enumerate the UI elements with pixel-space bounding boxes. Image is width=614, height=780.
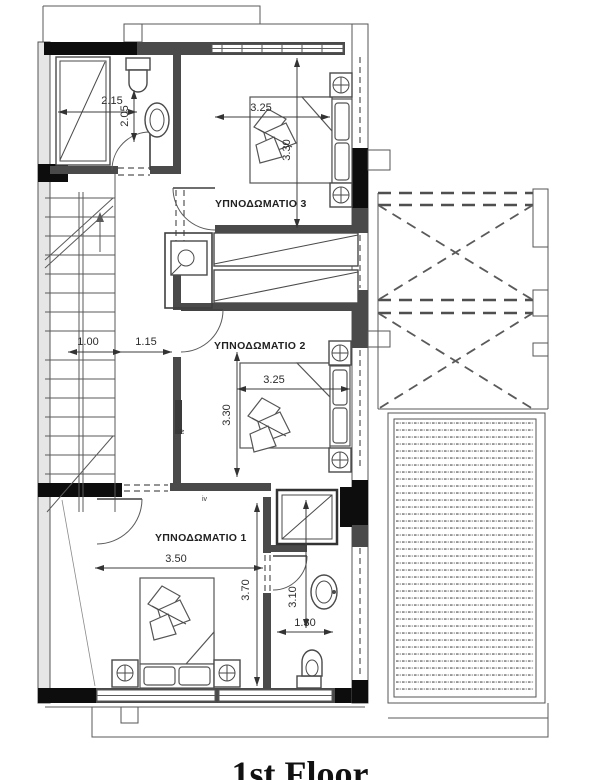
column-right-mid xyxy=(352,480,368,525)
pillow xyxy=(179,667,210,685)
closet-1 xyxy=(214,233,358,266)
sink-bottom xyxy=(311,575,337,609)
toilet-bottom xyxy=(297,650,322,688)
wall-black-bed1-north xyxy=(38,483,122,497)
ceiling-light-icon xyxy=(329,448,351,472)
pilaster-1 xyxy=(368,150,390,170)
dim-text: 3.30 xyxy=(281,139,293,160)
pergola-x-area xyxy=(378,189,548,409)
window-bottom-left xyxy=(97,690,215,701)
closet-2 xyxy=(214,270,358,303)
window-type-marker: iv xyxy=(202,496,208,503)
bed-bedroom-1 xyxy=(112,578,240,688)
dim-stairs-hall: 1.00 1.15 xyxy=(68,336,172,352)
shower-central xyxy=(165,233,212,308)
left-wall xyxy=(38,42,50,703)
shower-bottom xyxy=(277,490,337,544)
entry-step xyxy=(121,707,138,723)
bed-bedroom-3 xyxy=(250,73,352,207)
ceiling-light-icon xyxy=(330,183,352,207)
column-right-bottom xyxy=(352,680,368,703)
bed-bedroom-2 xyxy=(240,341,351,472)
sink-top xyxy=(145,103,169,137)
pillow xyxy=(335,143,349,180)
dim-text: 3.25 xyxy=(263,374,284,386)
room-label-bedroom-3: ΥΠΝΟΔΩΜΑΤΙΟ 3 xyxy=(215,198,307,210)
dim-text: 3.30 xyxy=(221,404,233,425)
pillow xyxy=(144,667,175,685)
toilet-top xyxy=(126,58,150,92)
drawing-caption: 1st Floor xyxy=(232,754,369,780)
dim-text: 1.00 xyxy=(77,336,98,348)
dim-text: 1.15 xyxy=(135,336,156,348)
dim-text: 2.05 xyxy=(119,105,131,126)
plot-outline xyxy=(45,703,548,737)
dim-text: 1.30 xyxy=(294,617,315,629)
window-top xyxy=(212,45,343,53)
chimney xyxy=(124,24,142,42)
stair-void-line xyxy=(62,500,95,686)
pillow xyxy=(333,408,347,443)
radiator xyxy=(175,400,182,434)
roof-terrace xyxy=(388,413,545,703)
dim-text: 2.15 xyxy=(101,95,122,107)
ceiling-light-icon xyxy=(330,73,352,97)
ceiling-light-icon xyxy=(214,660,240,687)
room-label-bedroom-1: ΥΠΝΟΔΩΜΑΤΙΟ 1 xyxy=(155,532,247,544)
pillow xyxy=(335,103,349,140)
pilaster-2 xyxy=(368,331,390,347)
door-bathroom-bottom xyxy=(265,555,307,593)
ceiling-light-icon xyxy=(112,660,138,687)
stair-direction-arrow xyxy=(96,212,104,252)
floor-plan-drawing: 2.15 2.05 1.00 1.15 3.25 3.30 3.25 3.30 … xyxy=(0,0,614,780)
shower-top-left xyxy=(56,57,110,165)
column-sw xyxy=(38,688,96,703)
ceiling-light-icon xyxy=(329,341,351,365)
window-bottom-right xyxy=(219,690,332,701)
column-right-top xyxy=(352,148,368,208)
dim-text: 3.10 xyxy=(287,586,299,607)
floor-plan-canvas: 2.15 2.05 1.00 1.15 3.25 3.30 3.25 3.30 … xyxy=(0,0,614,780)
window-type-marker: iv xyxy=(179,428,186,434)
room-label-bedroom-2: ΥΠΝΟΔΩΜΑΤΙΟ 2 xyxy=(214,340,306,352)
pillow xyxy=(333,370,347,405)
staircase xyxy=(45,192,115,686)
dim-text: 3.50 xyxy=(165,553,186,565)
dim-text: 3.70 xyxy=(240,579,252,600)
dim-text: 3.25 xyxy=(250,102,271,114)
